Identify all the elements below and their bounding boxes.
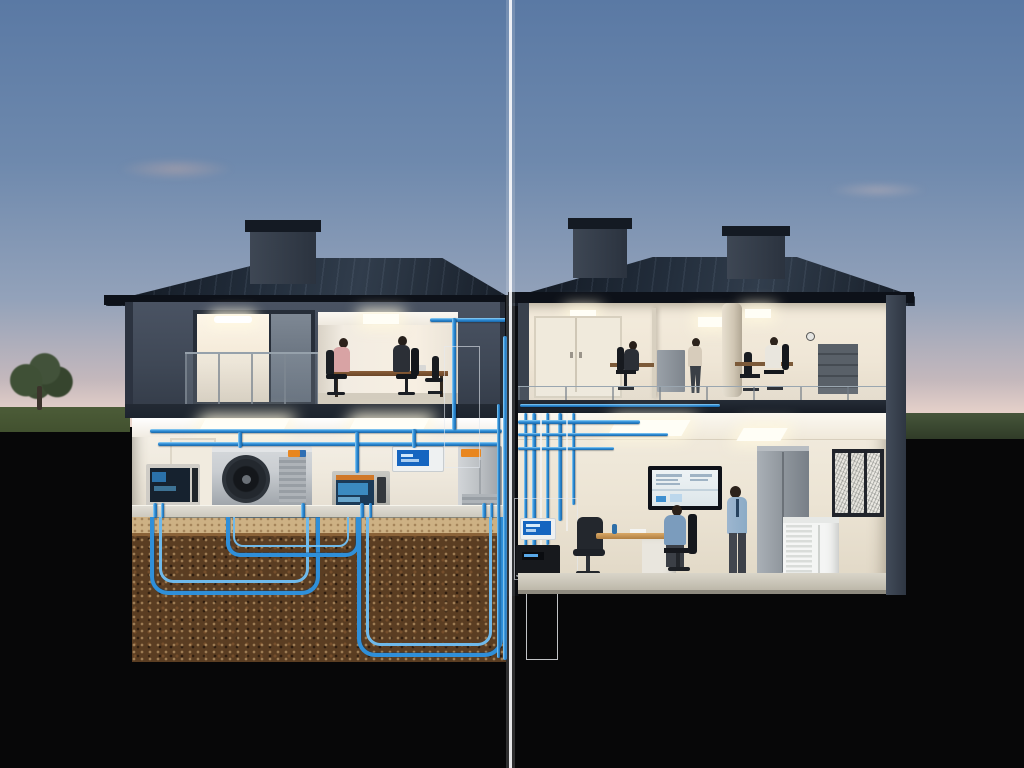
panel-buttons bbox=[377, 477, 386, 503]
pipe-riser bbox=[452, 404, 456, 430]
geothermal-loop-deep-inner bbox=[366, 517, 492, 646]
left-chimney bbox=[250, 226, 316, 284]
door-handle bbox=[579, 352, 582, 358]
office-chair-base bbox=[398, 392, 415, 395]
ground-pipe-stub bbox=[301, 503, 305, 518]
panel-screen-header bbox=[336, 475, 374, 480]
pipe-drop bbox=[412, 429, 416, 448]
cluster-pipe-h bbox=[518, 420, 640, 424]
desk-bottle bbox=[612, 524, 617, 534]
cluster-pipe bbox=[572, 413, 575, 505]
person-woman-body bbox=[333, 347, 350, 372]
right-chimney-1 bbox=[573, 224, 627, 278]
ground-pipe-stub bbox=[369, 503, 372, 518]
pipe-drop bbox=[238, 432, 242, 448]
grass-left bbox=[0, 407, 130, 432]
office-chair bbox=[326, 350, 334, 376]
tv-text-row bbox=[656, 479, 678, 481]
standing-man-tie bbox=[736, 499, 739, 517]
wall-clock bbox=[806, 332, 815, 341]
empty-office-chair-seat bbox=[573, 549, 605, 556]
monitor-content bbox=[154, 486, 176, 491]
left-chimney-cap bbox=[245, 220, 321, 232]
person-seated2-body bbox=[765, 345, 781, 368]
thermostat-digits bbox=[401, 454, 413, 457]
grass-right bbox=[902, 413, 1024, 439]
tv-text-row bbox=[690, 479, 708, 481]
scene-cutaway-building bbox=[0, 0, 1024, 768]
tv-chart-block bbox=[670, 494, 682, 502]
hydro-digits bbox=[526, 529, 536, 532]
lower-ceiling-light bbox=[736, 428, 788, 441]
empty-office-chair-stem bbox=[586, 556, 590, 572]
tv-text-row bbox=[690, 474, 712, 477]
office-chair bbox=[617, 347, 624, 372]
artwork-panel bbox=[867, 453, 880, 513]
office-chair-seat bbox=[425, 378, 443, 382]
ventilation-unit-slats bbox=[786, 525, 812, 575]
cloud-left bbox=[118, 158, 234, 180]
panel-screen-chart bbox=[338, 483, 368, 495]
ventilation-unit-seam bbox=[818, 525, 820, 575]
geothermal-loop-shallow-inner bbox=[233, 517, 349, 547]
cloud-right bbox=[828, 182, 928, 198]
office-ceiling-light bbox=[363, 314, 399, 324]
right-chimney-1-cap bbox=[568, 218, 632, 229]
artwork-panel bbox=[835, 453, 848, 513]
seated-worker-chair-base bbox=[668, 567, 690, 571]
office-chair-stem bbox=[334, 379, 337, 393]
right-outer-wall bbox=[886, 295, 906, 595]
right-chimney-2 bbox=[727, 231, 785, 279]
office-chair bbox=[432, 356, 439, 380]
thermostat-digits bbox=[401, 459, 419, 462]
seated-worker-body bbox=[664, 515, 686, 545]
black-unit-readout bbox=[524, 554, 538, 557]
door-handle bbox=[570, 352, 573, 358]
heat-pump-fan-hub bbox=[242, 475, 251, 484]
office-chair bbox=[411, 348, 419, 376]
ground-pipe-stub bbox=[161, 503, 164, 518]
thermostat-screen bbox=[397, 450, 429, 466]
right-roof-fascia bbox=[508, 292, 914, 303]
right-chimney-2-cap bbox=[722, 226, 790, 236]
desk-papers bbox=[630, 529, 646, 533]
window-ceiling-light-glow bbox=[214, 316, 252, 323]
office-chair-base bbox=[327, 392, 345, 395]
tv-text-row bbox=[656, 474, 682, 477]
office-chair-stem bbox=[405, 379, 408, 393]
ground-pipe-stub bbox=[153, 503, 157, 518]
tv-divider-line bbox=[652, 489, 718, 491]
ventilation-unit-top bbox=[783, 517, 839, 523]
tree-trunk bbox=[37, 386, 42, 410]
tv-text-row bbox=[656, 483, 680, 485]
partition-wall bbox=[652, 308, 656, 398]
heat-pump-vents bbox=[279, 457, 306, 502]
artwork-panel bbox=[851, 453, 864, 513]
pipe-drop bbox=[355, 432, 359, 473]
slab-pipe-run bbox=[520, 404, 720, 407]
center-pipe-riser bbox=[497, 404, 500, 658]
heat-pump-brand-label bbox=[288, 450, 306, 457]
right-office-floor bbox=[518, 573, 886, 594]
cabinet-top bbox=[757, 446, 809, 451]
person-seated-body bbox=[624, 349, 639, 371]
duct-outline-below bbox=[526, 590, 558, 660]
left-facade-edge bbox=[125, 302, 133, 406]
panel-screen-row bbox=[338, 497, 360, 502]
office-chair-seat bbox=[740, 374, 760, 378]
person-man-body bbox=[393, 345, 410, 372]
comparison-divider-line bbox=[509, 0, 512, 768]
office-chair-seat bbox=[764, 370, 784, 374]
structural-column bbox=[722, 303, 742, 397]
upper-light bbox=[745, 309, 771, 318]
ground-pipe-stub bbox=[490, 503, 493, 518]
person-walking-body bbox=[688, 346, 702, 367]
upper-pipe-run bbox=[430, 318, 508, 322]
standing-man-leg bbox=[729, 533, 737, 578]
monitor-side-panel bbox=[192, 468, 198, 502]
balcony-balustrade bbox=[185, 352, 319, 406]
tv-chart-block bbox=[656, 496, 666, 502]
door-seam bbox=[575, 318, 577, 392]
seated-worker-chair-stem bbox=[676, 553, 680, 567]
standing-man-leg bbox=[738, 533, 746, 578]
ground-pipe-stub bbox=[482, 503, 486, 518]
ground-pipe-stub bbox=[360, 503, 364, 518]
pipe-chase-outline bbox=[444, 346, 480, 468]
monitor-content bbox=[152, 472, 166, 482]
office-chair-base bbox=[428, 391, 442, 394]
hydro-digits bbox=[526, 524, 540, 527]
office-chair bbox=[782, 344, 789, 370]
